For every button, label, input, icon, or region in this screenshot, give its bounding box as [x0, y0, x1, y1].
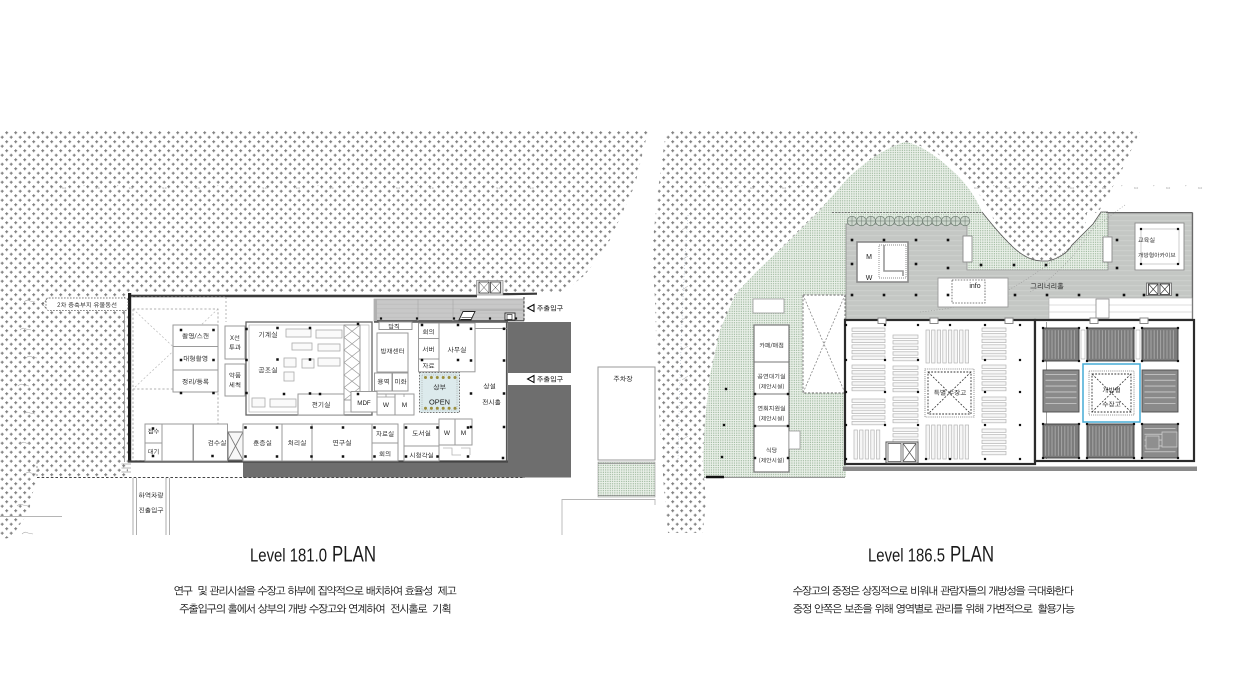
svg-text:9.0: 9.0	[1134, 186, 1139, 190]
svg-text:MDF: MDF	[357, 400, 371, 407]
svg-text:9.0: 9.0	[718, 186, 723, 190]
svg-text:⌜: ⌜	[801, 184, 803, 189]
svg-text:9.0: 9.0	[1166, 186, 1171, 190]
svg-text:M: M	[461, 430, 466, 437]
svg-text:⌜: ⌜	[250, 184, 252, 189]
svg-text:9.0: 9.0	[1070, 186, 1075, 190]
svg-text:9.0: 9.0	[782, 186, 787, 190]
svg-text:Level 186.5: Level 186.5	[868, 546, 945, 566]
svg-text:⌜: ⌜	[351, 184, 353, 189]
svg-text:⌜: ⌜	[117, 184, 119, 189]
svg-text:⌜: ⌜	[993, 184, 995, 189]
svg-text:Level 181.0: Level 181.0	[250, 546, 327, 566]
svg-text:⌜: ⌜	[1153, 184, 1155, 189]
svg-text:9.0: 9.0	[496, 186, 501, 190]
svg-text:9.0: 9.0	[329, 186, 334, 190]
svg-text:9.0: 9.0	[974, 186, 979, 190]
svg-text:info: info	[969, 283, 980, 290]
svg-text:M: M	[866, 254, 872, 261]
svg-text:⌜: ⌜	[1185, 184, 1187, 189]
svg-text:⌜: ⌜	[184, 184, 186, 189]
svg-text:PLAN: PLAN	[332, 542, 376, 567]
svg-text:9.0: 9.0	[530, 186, 535, 190]
svg-text:⌜: ⌜	[417, 184, 419, 189]
svg-text:9.0: 9.0	[62, 186, 67, 190]
svg-text:⌜: ⌜	[833, 184, 835, 189]
svg-text:9.0: 9.0	[196, 186, 201, 190]
svg-text:9.0: 9.0	[1038, 186, 1043, 190]
svg-text:⌜: ⌜	[737, 184, 739, 189]
svg-text:9.0: 9.0	[262, 186, 267, 190]
svg-text:W: W	[444, 430, 451, 437]
svg-text:⌜: ⌜	[484, 184, 486, 189]
svg-text:⌜: ⌜	[705, 184, 707, 189]
svg-text:9.0: 9.0	[162, 186, 167, 190]
svg-text:⌜: ⌜	[83, 184, 85, 189]
svg-text:⌜: ⌜	[384, 184, 386, 189]
svg-text:9.0: 9.0	[429, 186, 434, 190]
svg-text:PLAN: PLAN	[950, 542, 994, 567]
svg-text:⌜: ⌜	[451, 184, 453, 189]
svg-text:⌜: ⌜	[284, 184, 286, 189]
svg-text:OPEN: OPEN	[429, 398, 450, 407]
svg-text:9.0: 9.0	[1006, 186, 1011, 190]
svg-text:⌜: ⌜	[1057, 184, 1059, 189]
svg-text:9.0: 9.0	[396, 186, 401, 190]
svg-text:9.0: 9.0	[1102, 186, 1107, 190]
svg-text:⌜: ⌜	[1025, 184, 1027, 189]
svg-text:⌜: ⌜	[150, 184, 152, 189]
svg-text:9.0: 9.0	[463, 186, 468, 190]
svg-text:⌜: ⌜	[217, 184, 219, 189]
svg-text:⌜: ⌜	[1121, 184, 1123, 189]
svg-text:9.0: 9.0	[95, 186, 100, 190]
svg-text:9.0: 9.0	[814, 186, 819, 190]
svg-text:W: W	[866, 275, 873, 282]
svg-text:9.0: 9.0	[129, 186, 134, 190]
svg-text:9.0: 9.0	[1198, 186, 1203, 190]
svg-text:9.0: 9.0	[296, 186, 301, 190]
svg-text:9.0: 9.0	[363, 186, 368, 190]
svg-text:M: M	[402, 402, 407, 409]
svg-text:⌜: ⌜	[1089, 184, 1091, 189]
svg-text:⌜: ⌜	[50, 184, 52, 189]
svg-text:9.0: 9.0	[750, 186, 755, 190]
svg-text:⌜: ⌜	[518, 184, 520, 189]
svg-text:⌜: ⌜	[769, 184, 771, 189]
svg-text:⌜: ⌜	[317, 184, 319, 189]
svg-text:9.0: 9.0	[229, 186, 234, 190]
svg-text:W: W	[383, 402, 390, 409]
